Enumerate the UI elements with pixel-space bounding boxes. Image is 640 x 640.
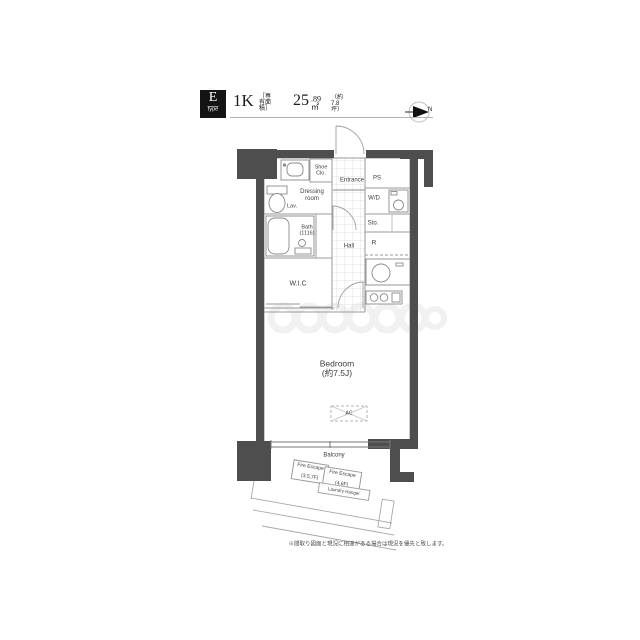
- label-storage: Sto.: [368, 220, 379, 227]
- area-label: ［専有面積］: [259, 94, 271, 112]
- label-hall: Hall: [344, 243, 354, 250]
- label-bath: Bath (1116): [299, 224, 314, 236]
- entrance-door-arc: [336, 126, 364, 154]
- fire-escape-1-line1: Fire Escape: [297, 463, 324, 472]
- label-laundry-hanger: Laundry Hanger: [328, 487, 361, 496]
- label-entrance: Entrance: [340, 177, 364, 184]
- area-tsubo: （約7.8坪）: [331, 95, 343, 113]
- label-washer-dryer: W/D: [368, 195, 380, 202]
- footnote: ※間取り図面と現況に相違がある場合は現況を優先と致します。: [289, 539, 448, 547]
- label-dressing-room: Dressing room: [298, 188, 327, 201]
- header-rule: [230, 117, 433, 118]
- toilet-icon: [267, 186, 287, 213]
- layout-type: 1K: [233, 92, 254, 109]
- label-balcony: Balcony: [323, 452, 344, 459]
- label-bedroom: Bedroom (約7.5J): [320, 360, 354, 379]
- label-ac: AC: [346, 410, 353, 416]
- area-value-frac: .89㎡: [311, 96, 321, 112]
- area-value-int: 25: [293, 93, 309, 109]
- label-refrigerator: R: [372, 239, 377, 246]
- type-badge-letter: E: [200, 90, 226, 106]
- label-bath-size: (1116): [299, 230, 314, 236]
- type-badge: E type: [200, 90, 226, 118]
- stove-icon: [366, 291, 402, 304]
- washbasin-icon: [281, 160, 309, 180]
- kitchen-sink-icon: [366, 259, 410, 285]
- compass-n-label: N: [428, 107, 432, 113]
- label-shoe-closet: Shoe Clo.: [314, 164, 328, 176]
- label-bedroom-name: Bedroom: [320, 360, 354, 369]
- label-ps: PS: [373, 175, 381, 182]
- type-badge-word: type: [208, 106, 219, 112]
- label-lavatory: Lav.: [287, 203, 297, 209]
- label-walk-in-closet: W.I.C: [289, 280, 306, 288]
- balcony-divider: [378, 499, 394, 529]
- compass-icon: [405, 102, 429, 122]
- label-bedroom-size: (約7.5J): [320, 369, 354, 378]
- fire-escape-2-line1: Fire Escape: [329, 470, 356, 479]
- washer-icon: [389, 190, 408, 212]
- fire-escape-1-line2: (3,5,7F): [300, 473, 318, 481]
